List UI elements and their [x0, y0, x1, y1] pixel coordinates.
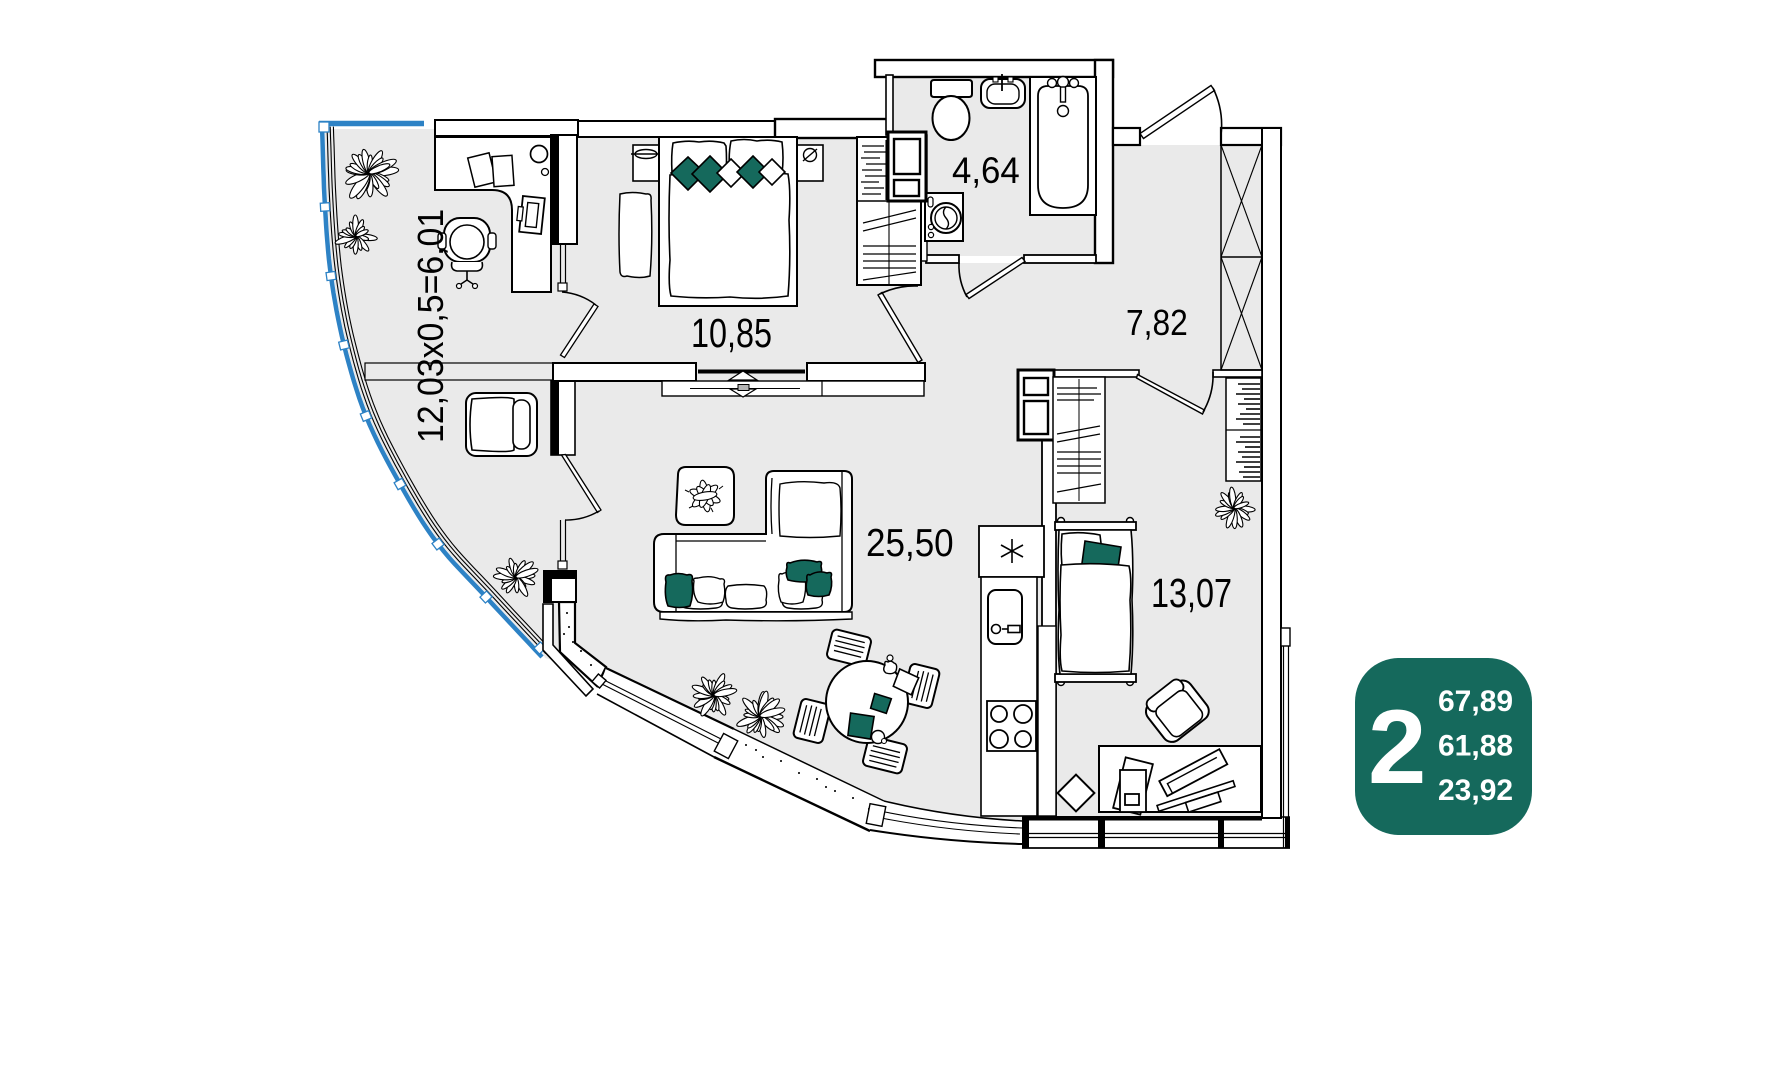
svg-text:61,88: 61,88	[1438, 730, 1513, 763]
svg-text:12,03x0,5=6,01: 12,03x0,5=6,01	[411, 209, 451, 443]
svg-text:67,89: 67,89	[1438, 685, 1513, 718]
svg-text:13,07: 13,07	[1151, 570, 1232, 615]
svg-text:4,64: 4,64	[952, 150, 1020, 191]
svg-text:25,50: 25,50	[866, 521, 954, 564]
svg-text:2: 2	[1368, 689, 1426, 806]
svg-text:10,85: 10,85	[691, 310, 772, 355]
svg-text:7,82: 7,82	[1126, 303, 1188, 344]
svg-text:23,92: 23,92	[1438, 774, 1513, 807]
